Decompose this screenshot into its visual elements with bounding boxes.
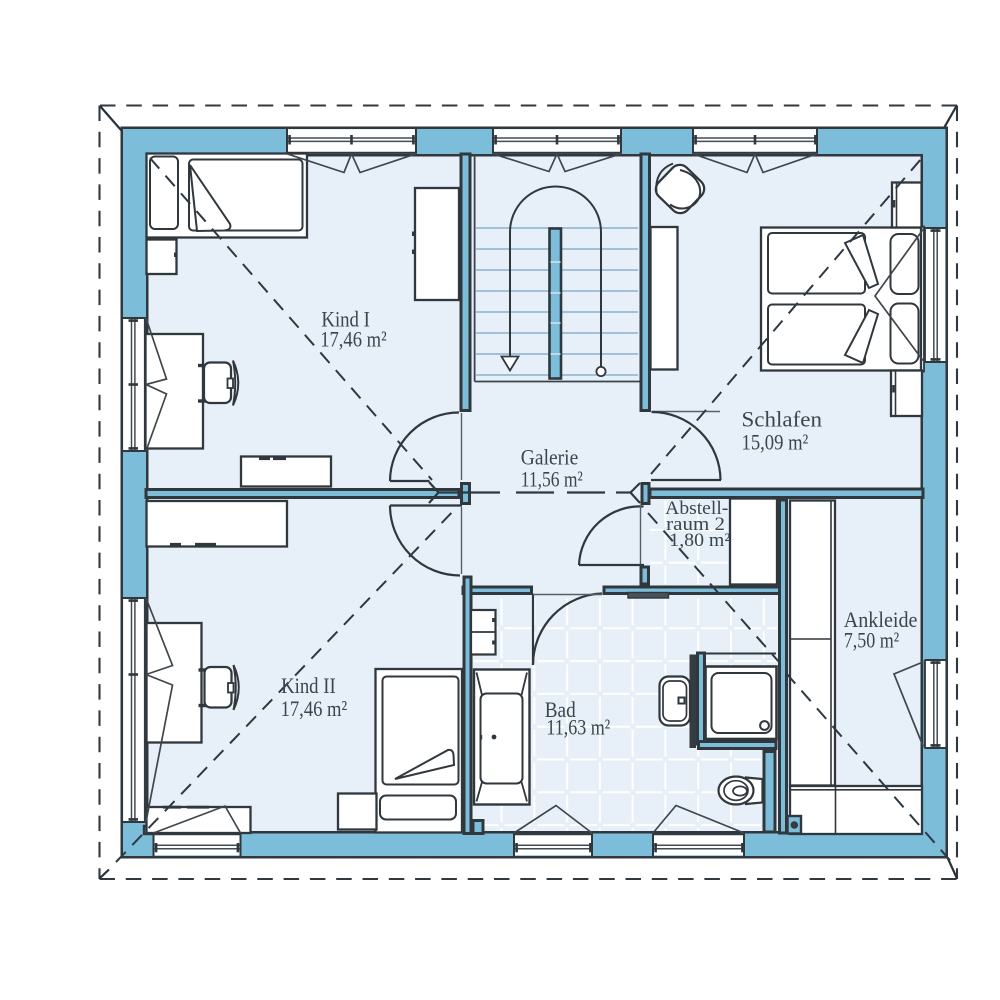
svg-text:11,63 m²: 11,63 m² [546,715,610,740]
svg-text:1,80 m²: 1,80 m² [669,530,730,551]
svg-text:17,46 m²: 17,46 m² [281,696,348,721]
svg-text:Kind II: Kind II [281,673,336,698]
svg-text:7,50 m²: 7,50 m² [844,628,900,653]
svg-text:Schlafen: Schlafen [742,407,823,432]
svg-text:17,46 m²: 17,46 m² [320,327,387,352]
svg-text:15,09 m²: 15,09 m² [742,430,809,455]
svg-text:11,56 m²: 11,56 m² [521,467,583,492]
